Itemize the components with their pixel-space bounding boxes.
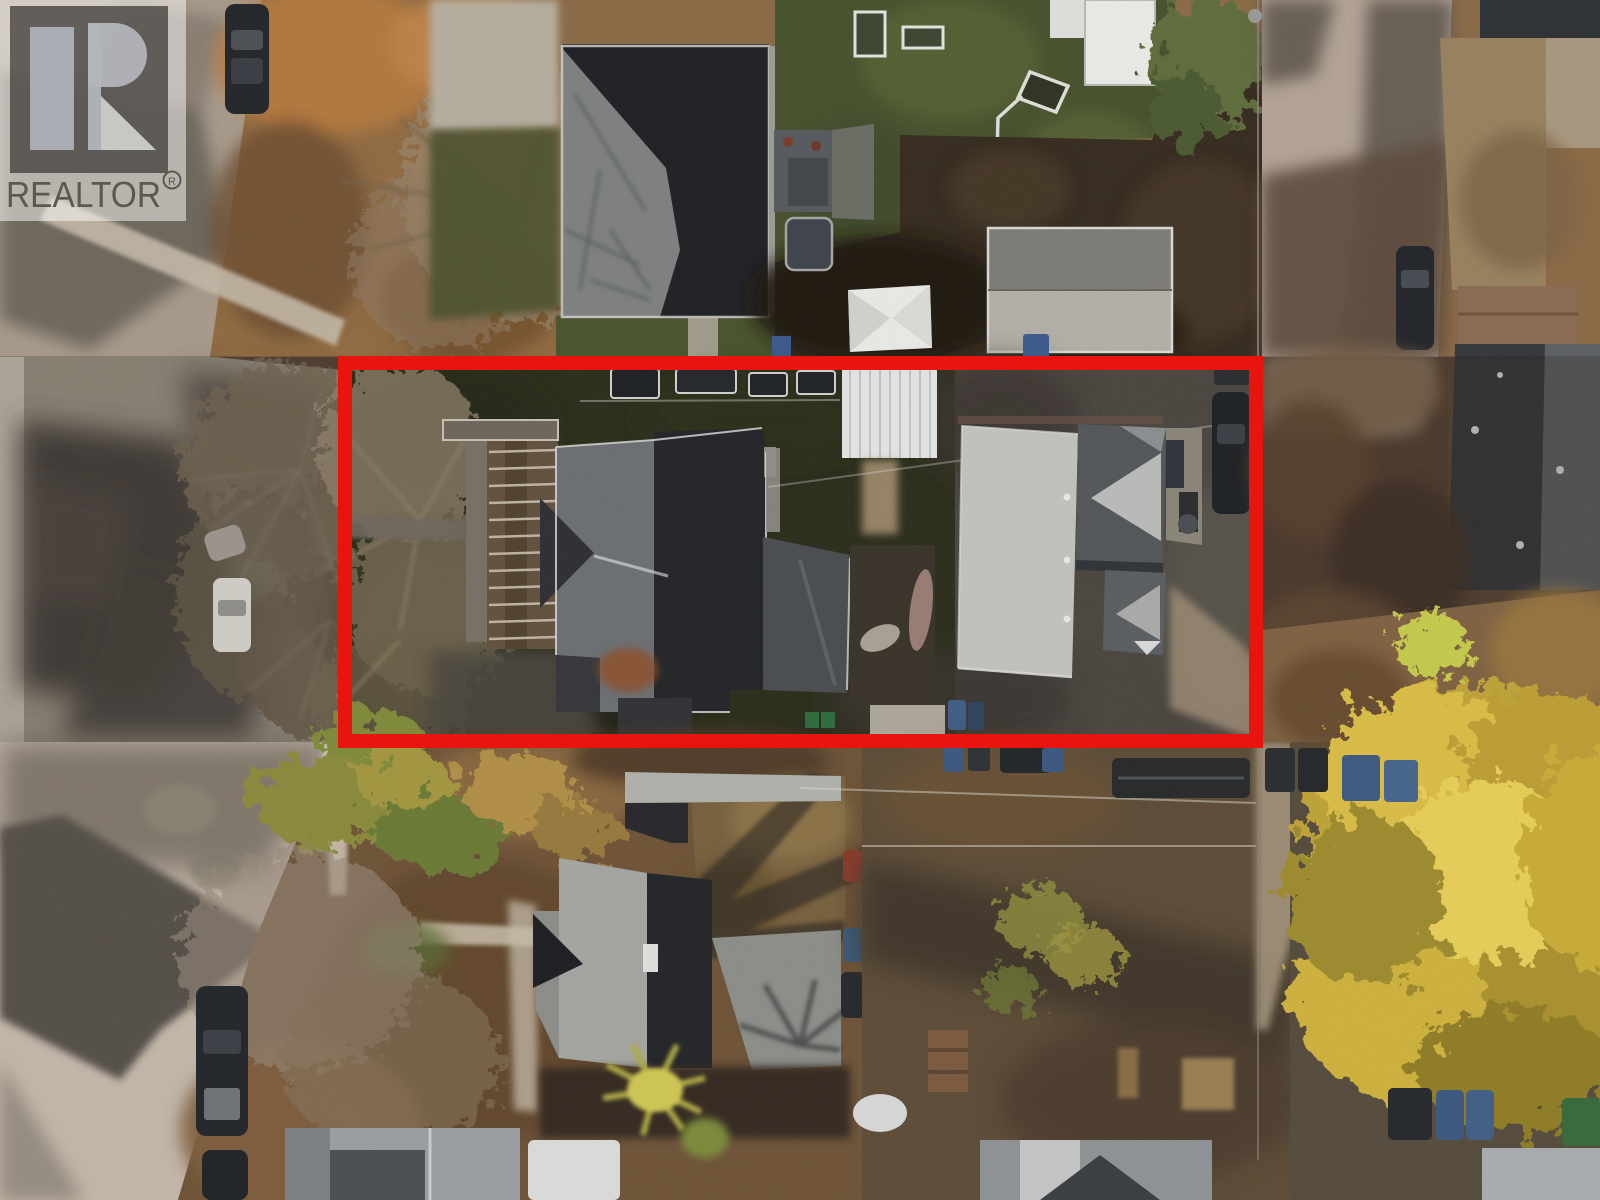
svg-text:R: R xyxy=(168,176,176,188)
svg-text:REALTOR: REALTOR xyxy=(6,174,161,215)
